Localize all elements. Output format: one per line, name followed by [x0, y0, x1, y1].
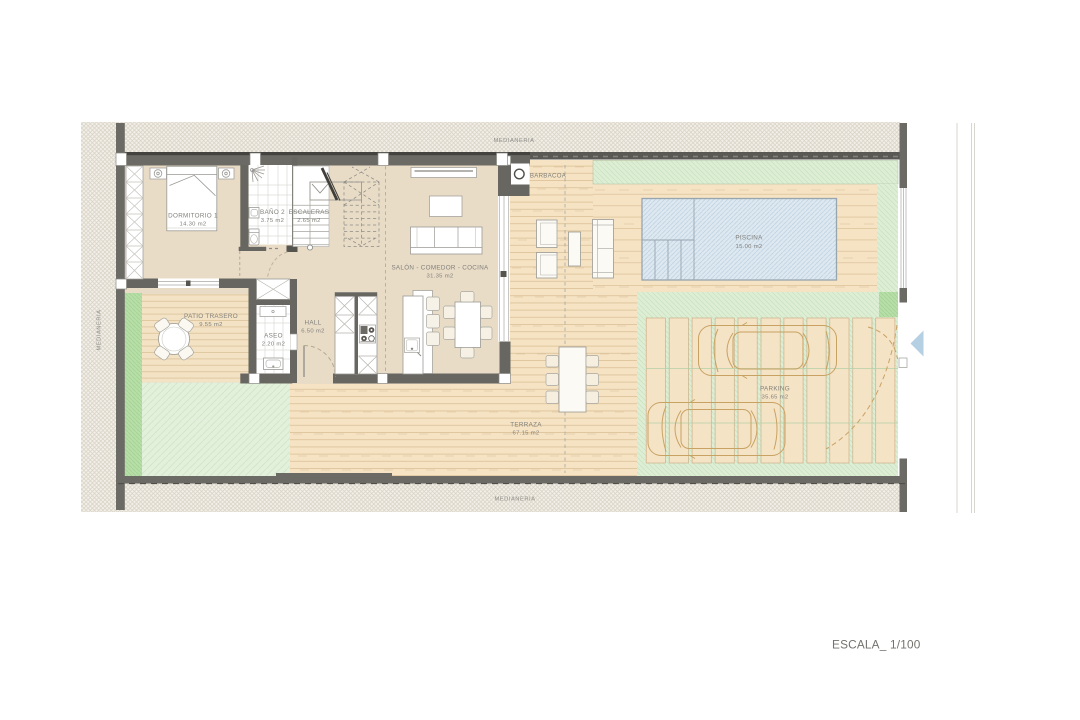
svg-text:31.35 m2: 31.35 m2: [427, 274, 454, 280]
svg-text:PATIO TRASERO: PATIO TRASERO: [184, 313, 238, 320]
svg-text:HALL: HALL: [305, 320, 322, 327]
svg-text:BARBACOA: BARBACOA: [530, 173, 567, 180]
svg-text:14.30 m2: 14.30 m2: [180, 222, 207, 228]
svg-text:35.65 m2: 35.65 m2: [762, 395, 789, 401]
svg-text:15.00 m2: 15.00 m2: [736, 244, 763, 250]
svg-text:6.50 m2: 6.50 m2: [301, 329, 324, 335]
svg-text:ESCALA_ 1/100: ESCALA_ 1/100: [832, 638, 921, 652]
svg-text:3.75 m2: 3.75 m2: [261, 218, 284, 224]
svg-text:9.55 m2: 9.55 m2: [199, 322, 222, 328]
svg-text:2.20 m2: 2.20 m2: [262, 342, 285, 348]
svg-text:PISCINA: PISCINA: [735, 235, 763, 242]
svg-text:MEDIANERIA: MEDIANERIA: [494, 497, 535, 503]
svg-text:DORMITORIO 1: DORMITORIO 1: [168, 213, 218, 220]
svg-text:67.15 m2: 67.15 m2: [513, 431, 540, 437]
svg-text:PARKING: PARKING: [760, 386, 790, 393]
svg-text:SALÓN - COMEDOR - COCINA: SALÓN - COMEDOR - COCINA: [391, 263, 489, 272]
svg-text:ASEO: ASEO: [264, 333, 283, 340]
svg-text:BAÑO 2: BAÑO 2: [260, 207, 285, 216]
svg-text:2.65 m2: 2.65 m2: [297, 218, 320, 224]
svg-text:TERRAZA: TERRAZA: [510, 422, 542, 429]
svg-text:MEDIANERIA: MEDIANERIA: [97, 309, 103, 350]
svg-text:MEDIANERIA: MEDIANERIA: [493, 138, 534, 144]
svg-text:ESCALERAS: ESCALERAS: [289, 209, 330, 216]
